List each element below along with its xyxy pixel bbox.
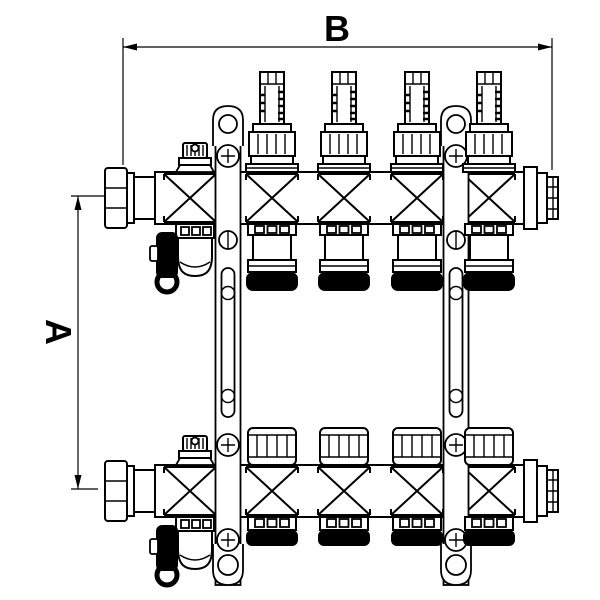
euroconus-outlet-icon xyxy=(391,517,443,546)
supply-outlets xyxy=(246,224,515,291)
valve-cap-icon xyxy=(393,428,441,465)
valve-cap-icon xyxy=(320,428,368,465)
valve-cap-icon xyxy=(465,428,513,465)
mounting-bracket-right xyxy=(441,106,471,585)
air-vent-valve-top xyxy=(176,143,214,172)
union-nut-bottom xyxy=(105,461,155,521)
drawing-canvas: B A xyxy=(0,0,600,600)
drain-valve-top xyxy=(150,224,214,292)
dimension-a-arrow-top xyxy=(75,196,82,210)
dimension-a-arrow-bottom xyxy=(75,475,82,489)
end-fitting-bottom xyxy=(524,460,558,522)
mounting-bracket-left xyxy=(213,106,243,585)
euroconus-outlet-icon xyxy=(318,224,370,291)
euroconus-outlet-icon xyxy=(246,517,298,546)
end-fitting-top xyxy=(524,167,558,229)
union-nut-top xyxy=(105,168,155,228)
manifold-technical-drawing: B A xyxy=(0,0,600,600)
euroconus-outlet-icon xyxy=(318,517,370,546)
euroconus-outlet-icon xyxy=(246,224,298,291)
dimension-a-label: A xyxy=(38,319,79,345)
dimension-a-label-group: A xyxy=(38,319,79,345)
dimension-b-arrow-right xyxy=(538,44,552,51)
dimension-height-a: A xyxy=(38,196,105,489)
euroconus-outlet-icon xyxy=(463,224,515,291)
flow-meter-icon xyxy=(391,72,443,172)
flow-meter-icon xyxy=(318,72,370,172)
valve-knobs xyxy=(248,428,513,465)
return-outlets xyxy=(246,517,515,546)
air-vent-valve-bottom xyxy=(176,436,214,465)
euroconus-outlet-icon xyxy=(463,517,515,546)
valve-cap-icon xyxy=(248,428,296,465)
dimension-b-label: B xyxy=(324,8,350,49)
euroconus-outlet-icon xyxy=(391,224,443,291)
flow-meters xyxy=(246,72,515,172)
flow-meter-icon xyxy=(246,72,298,172)
dimension-b-arrow-left xyxy=(123,44,137,51)
drain-valve-bottom xyxy=(150,517,214,585)
